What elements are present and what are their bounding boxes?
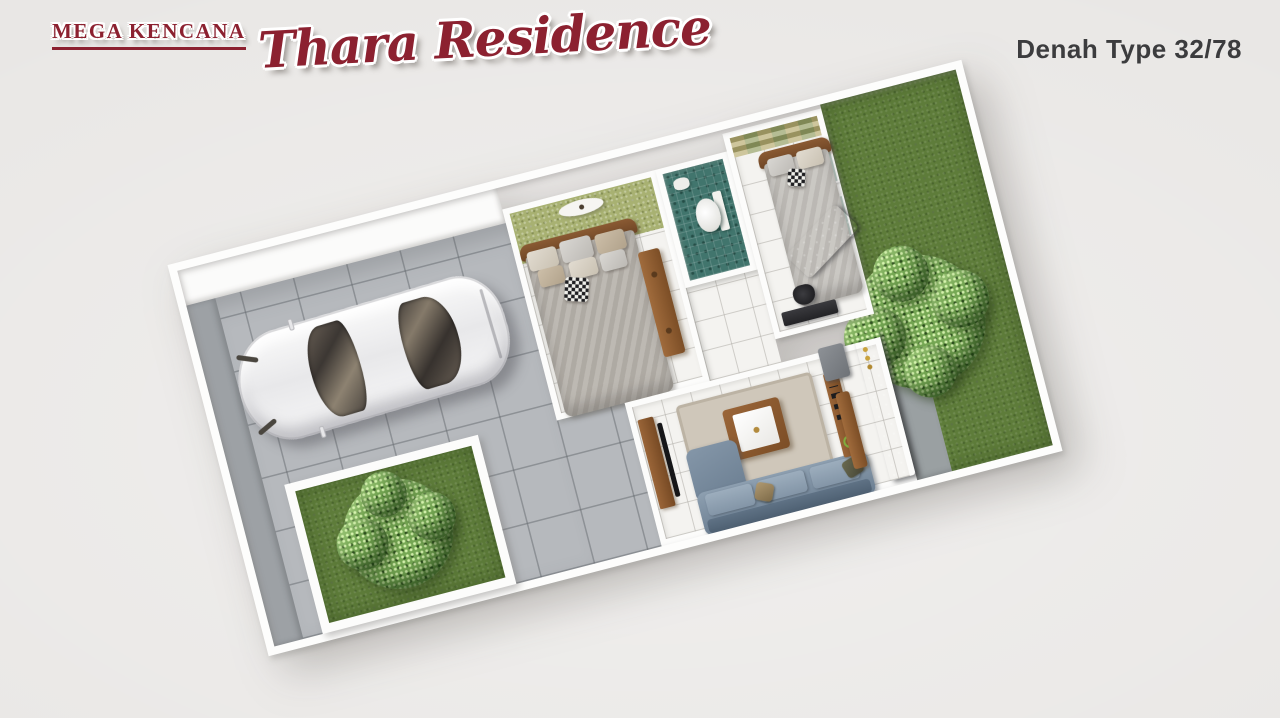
brand-company-name: MEGA KENCANA — [52, 19, 246, 50]
brand-project-name: Thara Residence — [257, 2, 712, 76]
brand-logo: MEGA KENCANA Thara Residence — [52, 14, 711, 64]
bathroom-sink — [672, 176, 690, 192]
checkered-pillow — [564, 277, 589, 302]
checkered-pillow — [787, 168, 806, 187]
floorplan-3d — [167, 60, 1062, 656]
poster: MEGA KENCANA Thara Residence Denah Type … — [0, 0, 1280, 718]
plan-title: Denah Type 32/78 — [1016, 34, 1242, 65]
throw-pillow — [754, 482, 775, 503]
